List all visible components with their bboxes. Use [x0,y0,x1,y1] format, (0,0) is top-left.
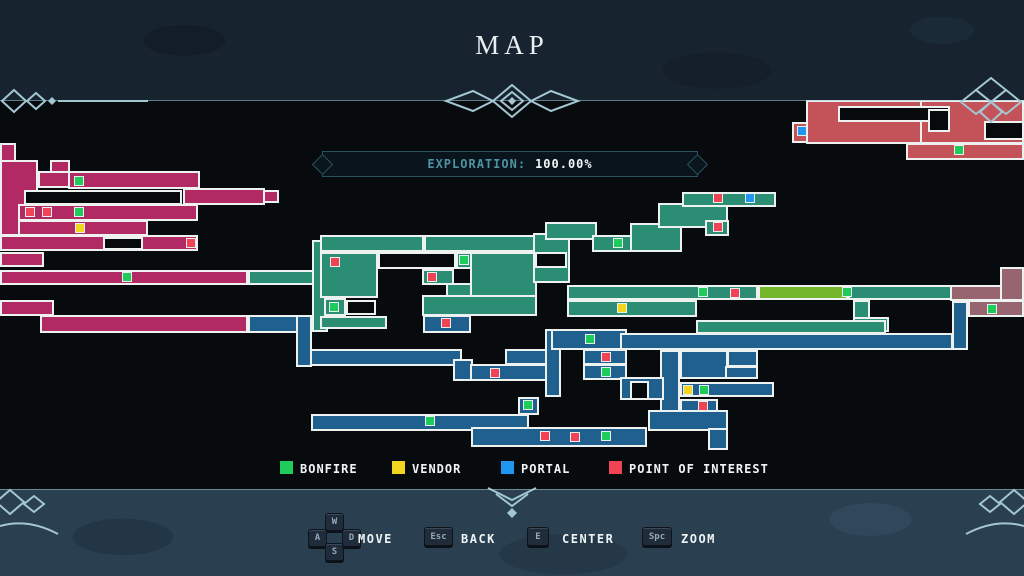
vendor-icon [617,303,627,313]
map-unexplored-room [378,252,456,269]
map-room [68,171,200,189]
bonfire-icon [425,416,435,426]
map-room [545,222,597,240]
vendor-icon [75,223,85,233]
map-room [422,295,537,316]
poi-icon [330,257,340,267]
portal-icon [745,193,755,203]
map-room [248,315,298,333]
bonfire-icon [842,287,852,297]
map-room [424,235,537,252]
bonfire-icon [459,255,469,265]
map-room [183,188,265,205]
bonfire-icon [987,304,997,314]
map-room [0,300,54,316]
bonfire-icon [699,385,709,395]
poi-icon [42,207,52,217]
map-room [725,366,758,379]
map-room [471,427,647,447]
legend-swatch-portal [501,461,514,474]
key-spc: Spc [642,527,672,546]
map-unexplored-room [630,381,649,400]
key-esc: Esc [424,527,453,546]
map-room [758,285,848,300]
bonfire-icon [523,400,533,410]
map-room [682,192,776,207]
bonfire-icon [122,272,132,282]
map-room [0,252,44,267]
key-e: E [527,527,549,546]
portal-icon [797,126,807,136]
map-room [727,350,758,367]
map-room [320,316,387,329]
move-label: MOVE [358,532,393,546]
key-s: S [325,543,344,561]
bottom-left-ornament [0,482,96,542]
map-room [320,252,378,298]
map-room [680,382,774,397]
wasd-key-cluster: W A S D [303,509,363,563]
bonfire-icon [74,176,84,186]
legend-swatch-bonfire [280,461,293,474]
map-room [620,333,953,350]
bottom-center-ornament [484,486,540,520]
poi-icon [441,318,451,328]
exploration-label: EXPLORATION: [427,157,526,171]
bonfire-icon [601,431,611,441]
map-room [263,190,279,203]
bonfire-icon [954,145,964,155]
poi-icon [713,222,723,232]
map-room [310,349,462,366]
map-room [40,315,248,333]
legend-label-poi: POINT OF INTEREST [629,462,769,476]
map-room [567,300,697,317]
top-center-ornament [442,82,582,120]
map-room [320,235,424,252]
map-room [470,364,554,381]
bonfire-icon [585,334,595,344]
map-room [708,428,728,450]
poi-icon [490,368,500,378]
map-room [470,252,537,298]
poi-icon [713,193,723,203]
map-room [0,235,198,251]
poi-icon [601,352,611,362]
poi-icon [427,272,437,282]
poi-icon [540,431,550,441]
center-label: CENTER [562,532,614,546]
poi-icon [186,238,196,248]
legend-label-portal: PORTAL [521,462,570,476]
legend-label-vendor: VENDOR [412,462,461,476]
exploration-badge: EXPLORATION: 100.00% [322,151,698,177]
poi-icon [25,207,35,217]
map-room [906,143,1024,160]
top-left-ornament [0,88,150,114]
legend-swatch-vendor [392,461,405,474]
poi-icon [730,288,740,298]
legend-label-bonfire: BONFIRE [300,462,358,476]
key-w: W [325,513,344,531]
map-unexplored-room [928,109,950,132]
map-unexplored-room [346,300,376,315]
poi-icon [570,432,580,442]
bonfire-icon [698,287,708,297]
map-room [952,301,968,350]
exploration-value: 100.00% [535,157,593,171]
bottom-right-ornament [928,482,1024,542]
legend-swatch-poi [609,461,622,474]
top-right-ornament [958,76,1024,126]
bonfire-icon [601,367,611,377]
map-unexplored-room [103,237,143,250]
map-unexplored-room [24,190,182,205]
bonfire-icon [613,238,623,248]
map-room [848,285,952,300]
zoom-label: ZOOM [681,532,716,546]
map-room [696,320,886,334]
map-room [950,285,1002,301]
vendor-icon [683,385,693,395]
poi-icon [698,401,708,411]
bonfire-icon [329,302,339,312]
map-unexplored-room [535,252,567,268]
map-room [38,171,70,188]
map-room [680,350,728,379]
bonfire-icon [74,207,84,217]
back-label: BACK [461,532,496,546]
map-room [1000,267,1024,301]
